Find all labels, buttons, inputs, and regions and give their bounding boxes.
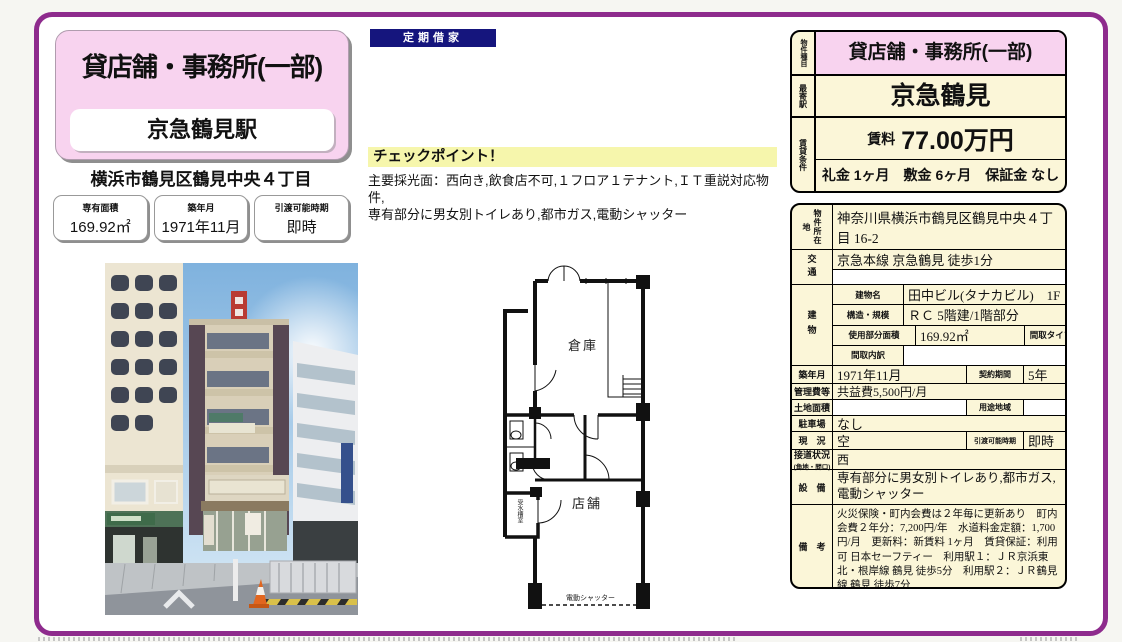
- shop-label: 店舗: [572, 493, 602, 512]
- status-label: 現 況: [792, 432, 833, 449]
- parking-value: なし: [833, 416, 1065, 431]
- access-value: 京急本線 京急鶴見 徒歩1分: [833, 250, 1065, 269]
- row-access: 交通 京急本線 京急鶴見 徒歩1分: [792, 250, 1065, 285]
- location-label: 物件所在地: [792, 205, 833, 249]
- used-area-value: 169.92㎡: [916, 326, 1025, 345]
- row-notes: 備 考 火災保険・町内会費は２年毎に更新あり 町内会費２年分：7,200円/年 …: [792, 505, 1065, 587]
- row-road: 接道状況 (角地・間口) 西: [792, 450, 1065, 470]
- building-photo-graphic: [105, 263, 358, 615]
- building-name-label: 建物名: [833, 285, 904, 304]
- cutoff-footer-text: [38, 637, 738, 641]
- info-box-handover: 引渡可能時期 即時: [254, 195, 349, 241]
- rent-row: 賃料 77.00万円: [816, 118, 1065, 160]
- info-box-built: 築年月 1971年11月: [154, 195, 249, 241]
- info-box-row: 専有面積 169.92㎡ 築年月 1971年11月 引渡可能時期 即時: [53, 195, 349, 241]
- summary-station-label: 最寄駅: [792, 76, 816, 116]
- info-label: 引渡可能時期: [255, 201, 348, 214]
- info-label: 専有面積: [54, 201, 147, 214]
- info-value: 即時: [255, 216, 348, 237]
- summary-row-type: 物件種目 貸店舗・事務所(一部): [792, 32, 1065, 76]
- info-label: 築年月: [155, 201, 248, 214]
- land-value: [833, 400, 966, 415]
- notes-value: 火災保険・町内会費は２年毎に更新あり 町内会費２年分：7,200円/年 水道料金…: [833, 505, 1065, 587]
- fixed-term-lease-badge: 定期借家: [370, 29, 496, 47]
- checkpoint-title: チェックポイント！: [368, 147, 777, 167]
- land-label: 土地面積: [792, 400, 833, 415]
- row-land: 土地面積 用途地域: [792, 400, 1065, 416]
- row-built: 築年月 1971年11月 契約期間 5年: [792, 366, 1065, 384]
- cutoff-footer-text: [1020, 637, 1080, 641]
- floor-plan: 倉庫 店舗 受水槽室 電動シャッター: [490, 265, 685, 620]
- rent-value: 77.00万円: [901, 121, 1014, 157]
- structure-value: ＲＣ 5階建/1階部分: [904, 305, 1067, 324]
- layout-detail-label: 間取内訳: [833, 346, 904, 365]
- summary-row-station: 最寄駅 京急鶴見: [792, 76, 1065, 118]
- contract-value: 5年: [1024, 366, 1065, 383]
- contract-label: 契約期間: [966, 366, 1024, 383]
- info-value: 1971年11月: [155, 216, 248, 237]
- summary-type-value: 貸店舗・事務所(一部): [816, 32, 1065, 74]
- building-grid: 建物名 田中ビル(タナカビル) 1F 構造・規模 ＲＣ 5階建/1階部分 使用部…: [833, 285, 1067, 365]
- checkpoint-line: 主要採光面：西向き,飲食店不可,１フロア１テナント,ＩＴ重説対応物件,: [368, 173, 784, 207]
- structure-label: 構造・規模: [833, 305, 904, 324]
- road-label: 接道状況 (角地・間口): [792, 450, 833, 469]
- terms-value: 礼金 1ヶ月 敷金 6ヶ月 保証金 なし: [816, 160, 1065, 191]
- detail-table: 物件所在地 神奈川県横浜市鶴見区鶴見中央４丁目 16-2 交通 京急本線 京急鶴…: [790, 203, 1067, 589]
- checkpoint-line: 専有部分に男女別トイレあり,都市ガス,電動シャッター: [368, 207, 784, 224]
- access-cell: 京急本線 京急鶴見 徒歩1分: [833, 250, 1065, 284]
- rent-label: 賃料: [867, 129, 895, 149]
- road-value: 西: [833, 450, 1065, 469]
- mgmt-label: 管理費等: [792, 384, 833, 399]
- property-address: 横浜市鶴見区鶴見中央４丁目: [55, 165, 347, 190]
- row-status: 現 況 空 引渡可能時期 即時: [792, 432, 1065, 450]
- checkpoint-body: 主要採光面：西向き,飲食店不可,１フロア１テナント,ＩＴ重説対応物件, 専有部分…: [368, 173, 784, 224]
- title-panel: 貸店舗・事務所(一部) 京急鶴見駅: [55, 30, 349, 160]
- built-value: 1971年11月: [833, 366, 966, 383]
- used-area-row: 使用部分面積 169.92㎡ 間取タイプ: [833, 326, 1067, 346]
- building-photo: [105, 263, 358, 615]
- property-type-title: 貸店舗・事務所(一部): [56, 47, 348, 84]
- equipment-label: 設 備: [792, 470, 833, 504]
- access-value-2: [833, 269, 1065, 284]
- location-value: 神奈川県横浜市鶴見区鶴見中央４丁目 16-2: [833, 205, 1065, 249]
- summary-terms-label: 賃貸条件: [792, 118, 816, 191]
- notes-label: 備 考: [792, 505, 833, 587]
- parking-label: 駐車場: [792, 416, 833, 431]
- summary-type-label: 物件種目: [792, 32, 816, 74]
- zoning-value: [1024, 400, 1065, 415]
- layout-detail-row: 間取内訳: [833, 346, 1067, 365]
- mgmt-value: 共益費5,500円/月: [833, 384, 1065, 399]
- access-label: 交通: [792, 250, 833, 284]
- info-value: 169.92㎡: [54, 216, 147, 237]
- info-box-area: 専有面積 169.92㎡: [53, 195, 148, 241]
- warehouse-label: 倉庫: [568, 335, 598, 354]
- summary-terms-cell: 賃料 77.00万円 礼金 1ヶ月 敷金 6ヶ月 保証金 なし: [816, 118, 1065, 191]
- layout-detail-value: [904, 346, 1067, 365]
- water-tank-room-label: 受水槽室: [516, 499, 522, 523]
- row-building: 建物 建物名 田中ビル(タナカビル) 1F 構造・規模 ＲＣ 5階建/1階部分 …: [792, 285, 1065, 366]
- handover-label: 引渡可能時期: [966, 432, 1024, 449]
- row-parking: 駐車場 なし: [792, 416, 1065, 432]
- status-value: 空: [833, 432, 966, 449]
- summary-row-terms: 賃貸条件 賃料 77.00万円 礼金 1ヶ月 敷金 6ヶ月 保証金 なし: [792, 118, 1065, 191]
- used-area-label: 使用部分面積: [833, 326, 916, 345]
- summary-station-value: 京急鶴見: [816, 76, 1065, 116]
- row-mgmt: 管理費等 共益費5,500円/月: [792, 384, 1065, 400]
- station-title: 京急鶴見駅: [70, 109, 334, 151]
- equipment-value: 専有部分に男女別トイレあり,都市ガス,電動シャッター: [833, 470, 1065, 504]
- building-label: 建物: [792, 285, 833, 365]
- layout-type-label: 間取タイプ: [1025, 326, 1067, 345]
- built-label: 築年月: [792, 366, 833, 383]
- structure-row: 構造・規模 ＲＣ 5階建/1階部分: [833, 305, 1067, 325]
- building-name-value: 田中ビル(タナカビル) 1F: [904, 285, 1067, 304]
- electric-shutter-label: 電動シャッター: [566, 593, 615, 603]
- building-name-row: 建物名 田中ビル(タナカビル) 1F: [833, 285, 1067, 305]
- handover-value: 即時: [1024, 432, 1065, 449]
- zoning-label: 用途地域: [966, 400, 1024, 415]
- floor-plan-drawing: [490, 265, 685, 620]
- summary-table: 物件種目 貸店舗・事務所(一部) 最寄駅 京急鶴見 賃貸条件 賃料 77.00万…: [790, 30, 1067, 193]
- property-flyer-page: 貸店舗・事務所(一部) 京急鶴見駅 横浜市鶴見区鶴見中央４丁目 専有面積 169…: [0, 0, 1122, 642]
- row-equipment: 設 備 専有部分に男女別トイレあり,都市ガス,電動シャッター: [792, 470, 1065, 505]
- row-location: 物件所在地 神奈川県横浜市鶴見区鶴見中央４丁目 16-2: [792, 205, 1065, 250]
